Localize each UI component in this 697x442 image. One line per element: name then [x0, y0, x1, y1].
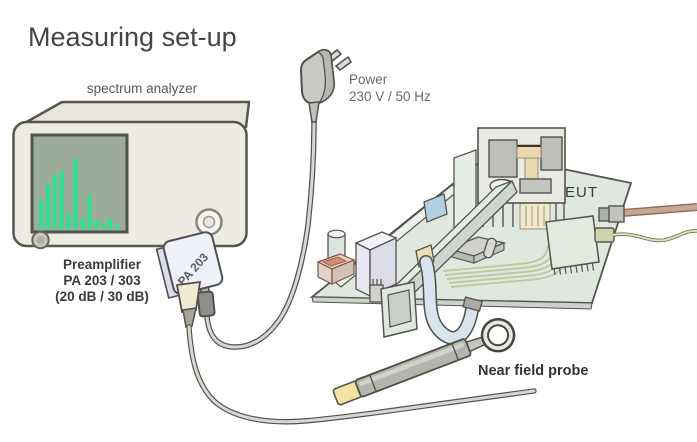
- signal-cable-connector: [595, 228, 614, 242]
- signal-cable: [595, 228, 697, 242]
- preamp-caption-line1: Preamplifier: [63, 257, 142, 272]
- preamp-caption-line2: PA 203 / 303: [63, 273, 141, 288]
- spectrum-bar: [87, 196, 91, 229]
- spectrum-bar: [101, 223, 105, 229]
- eut-label: EUT: [565, 184, 598, 201]
- spectrum-bar: [115, 225, 119, 229]
- tan-cable: [599, 206, 697, 222]
- spectrum-bar: [53, 174, 57, 229]
- power-plug: [301, 50, 351, 122]
- eut-board: EUT: [312, 128, 697, 338]
- rf-input-connector-pin: [204, 217, 215, 228]
- preamp-connector-tip: [183, 308, 196, 327]
- spectrum-bar: [46, 183, 50, 229]
- power-knob-center: [37, 236, 45, 244]
- spectrum-bar: [39, 199, 43, 229]
- dc-plug-body: [197, 291, 214, 316]
- probe-label: Near field probe: [478, 363, 588, 379]
- power-label-line1: Power: [349, 72, 388, 87]
- page-title: Measuring set-up: [28, 22, 237, 52]
- spectrum-bar: [108, 218, 112, 229]
- plug-prong: [336, 57, 351, 70]
- preamp-caption-line3: (20 dB / 30 dB): [55, 289, 149, 304]
- spectrum-bar: [74, 159, 78, 229]
- spectrum-bar: [67, 213, 71, 229]
- diagram-canvas: EUT PA 203: [0, 0, 697, 442]
- spectrum-bar: [60, 171, 64, 229]
- tan-cable-plug: [609, 206, 624, 222]
- analyzer-label: spectrum analyzer: [87, 81, 198, 96]
- spectrum-bar: [80, 218, 84, 229]
- plug-strain-relief: [309, 102, 319, 122]
- measuring-setup-diagram: EUT PA 203: [0, 0, 697, 442]
- power-label-line2: 230 V / 50 Hz: [349, 89, 431, 104]
- pin-header: [520, 203, 550, 229]
- spectrum-analyzer: [14, 102, 250, 248]
- spectrum-bar: [94, 220, 98, 229]
